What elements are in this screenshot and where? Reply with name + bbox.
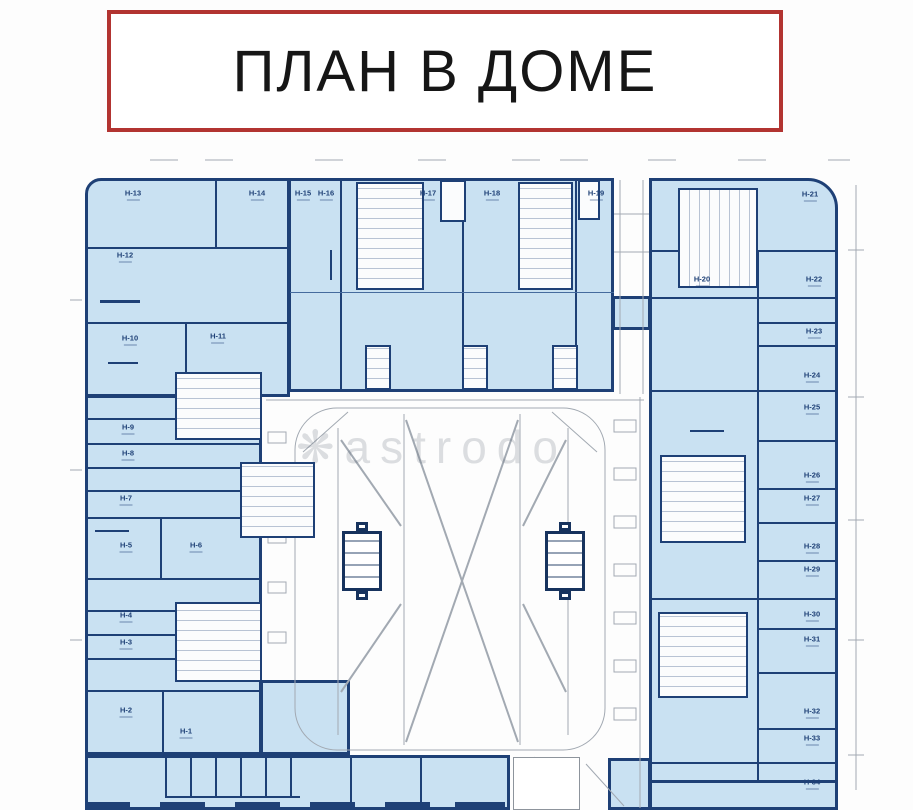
- unit-label: Н-15: [295, 190, 311, 201]
- page-title: ПЛАН В ДОМЕ: [233, 38, 658, 105]
- stair-core: [678, 188, 758, 288]
- unit-label: Н-19: [588, 190, 604, 201]
- wall: [162, 690, 164, 755]
- unit-label: Н-12: [117, 252, 133, 263]
- wall: [330, 250, 332, 280]
- wall: [240, 758, 242, 796]
- wall: [235, 802, 280, 807]
- unit-label: Н-32: [804, 708, 820, 719]
- unit-label: Н-13: [125, 190, 141, 201]
- wall: [95, 530, 129, 532]
- unit-label: Н-23: [806, 328, 822, 339]
- wall: [455, 802, 505, 807]
- wall: [85, 578, 262, 580]
- unit-label: Н-4: [120, 612, 133, 623]
- wall: [85, 517, 262, 519]
- unit-label: Н-16: [318, 190, 334, 201]
- unit-label: Н-2: [120, 707, 133, 718]
- wall: [649, 762, 838, 764]
- wall: [85, 322, 290, 324]
- wall: [649, 598, 838, 600]
- unit-label: Н-29: [804, 566, 820, 577]
- wall: [757, 560, 838, 562]
- unit-label: Н-20: [694, 276, 710, 287]
- entrance-stair: [552, 345, 578, 390]
- wall: [85, 443, 262, 445]
- wall: [690, 430, 724, 432]
- wall: [649, 390, 838, 392]
- wall: [757, 728, 838, 730]
- unit-label: Н-8: [122, 450, 135, 461]
- unit-label: Н-34: [804, 779, 820, 790]
- wall: [160, 802, 205, 807]
- title-box: ПЛАН В ДОМЕ: [107, 10, 783, 132]
- courtyard-core-nub: [356, 522, 368, 531]
- wall: [757, 488, 838, 490]
- wall: [165, 758, 167, 796]
- unit-label: Н-33: [804, 735, 820, 746]
- wall: [757, 250, 759, 780]
- wall: [85, 467, 262, 469]
- stair-core: [175, 372, 262, 440]
- courtyard-core-nub: [356, 591, 368, 600]
- unit-label: Н-1: [180, 728, 193, 739]
- unit-label: Н-21: [802, 191, 818, 202]
- unit-label: Н-27: [804, 495, 820, 506]
- unit-label: Н-6: [190, 542, 203, 553]
- watermark-text: astrodo: [345, 421, 568, 473]
- wall: [649, 297, 838, 299]
- wall: [215, 178, 217, 247]
- unit-label: Н-10: [122, 335, 138, 346]
- unit-label: Н-31: [804, 636, 820, 647]
- wall: [310, 802, 355, 807]
- wall: [340, 178, 342, 392]
- wall: [215, 758, 217, 796]
- unit-label: Н-9: [122, 424, 135, 435]
- wall: [757, 322, 838, 324]
- unit-label: Н-28: [804, 543, 820, 554]
- partition-line: [290, 292, 614, 293]
- wall: [100, 300, 140, 303]
- wall: [290, 758, 292, 796]
- unit-label: Н-24: [804, 372, 820, 383]
- unit-label: Н-30: [804, 611, 820, 622]
- wall: [160, 517, 162, 578]
- wall: [108, 362, 138, 364]
- stair-core: [658, 612, 748, 698]
- wall: [190, 758, 192, 796]
- wall: [265, 758, 267, 796]
- unit-label: Н-17: [420, 190, 436, 201]
- stair-core: [356, 182, 424, 290]
- stair-core: [240, 462, 315, 538]
- wall: [757, 628, 838, 630]
- unit-label: Н-5: [120, 542, 133, 553]
- ramp: [513, 757, 580, 810]
- unit-label: Н-18: [484, 190, 500, 201]
- stair-core: [660, 455, 746, 543]
- courtyard-core: [545, 531, 585, 591]
- stair-core: [518, 182, 573, 290]
- entrance-stair: [365, 345, 391, 390]
- courtyard-core-nub: [559, 522, 571, 531]
- entrance-stair: [462, 345, 488, 390]
- stair-core: [175, 602, 262, 682]
- watermark: ❋astrodo: [296, 420, 568, 474]
- unit-label: Н-3: [120, 639, 133, 650]
- unit-label: Н-25: [804, 404, 820, 415]
- wall: [85, 247, 290, 249]
- courtyard-core: [342, 531, 382, 591]
- unit-label: Н-26: [804, 472, 820, 483]
- unit-label: Н-22: [806, 276, 822, 287]
- wall: [757, 440, 838, 442]
- wall: [385, 802, 430, 807]
- courtyard-core-nub: [559, 591, 571, 600]
- wall: [85, 490, 262, 492]
- wall: [757, 345, 838, 347]
- unit-label: Н-14: [249, 190, 265, 201]
- wall: [85, 690, 262, 692]
- unit-label: Н-11: [210, 333, 226, 344]
- wall: [165, 796, 300, 798]
- unit-label: Н-7: [120, 495, 133, 506]
- wall: [757, 672, 838, 674]
- wall: [757, 522, 838, 524]
- wall: [85, 802, 130, 807]
- service-room: [440, 180, 466, 222]
